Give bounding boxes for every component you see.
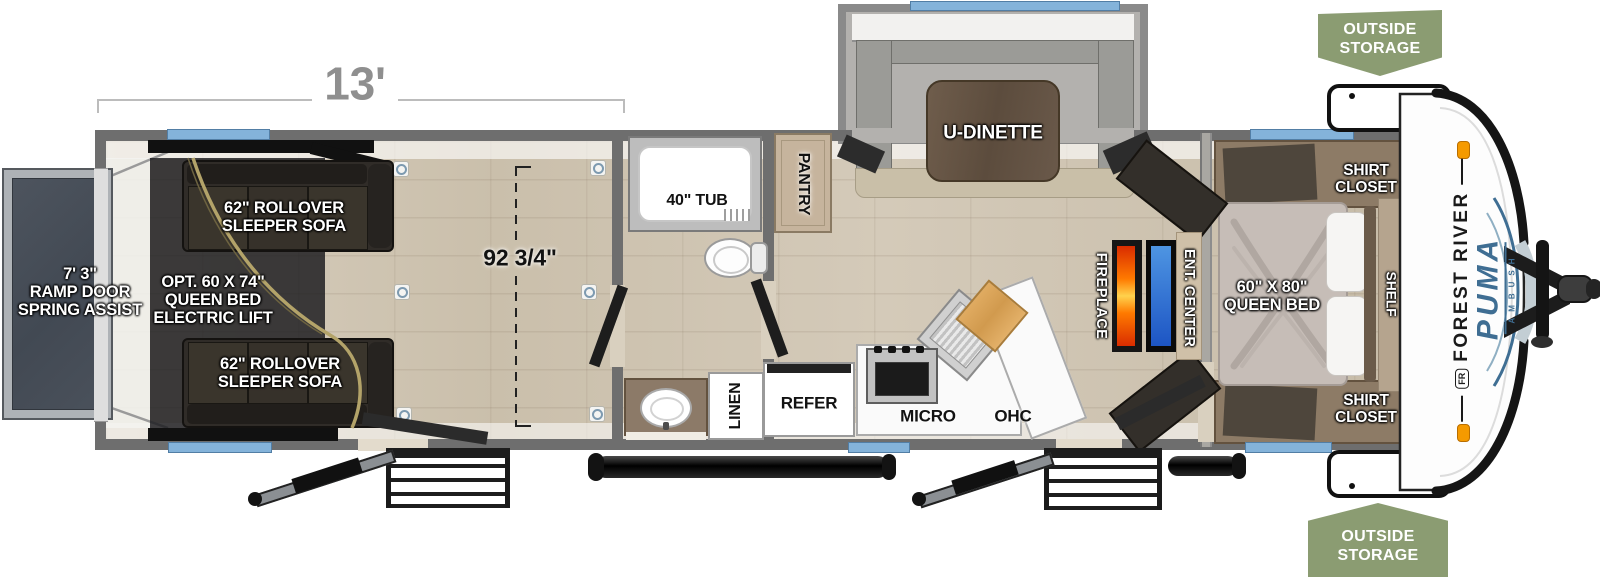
length-dim-tick-left: [97, 99, 99, 113]
fireplace-unit: [1112, 240, 1142, 352]
dinette-label: U-DINETTE: [943, 124, 1043, 145]
toilet-tank: [750, 242, 768, 274]
awning-tube-cap-right: [882, 454, 896, 480]
floorplan-canvas: 13' 7' 3" RAMP DOOR SPRING ASSIST: [0, 0, 1600, 577]
outside-storage-badge-top: OUTSIDE STORAGE: [1318, 10, 1442, 76]
garage-steps-rail-foot: [248, 492, 262, 506]
stove: [866, 348, 938, 404]
marker-light-top: [1457, 141, 1470, 159]
sofa-bottom-label: 62" ROLLOVER SLEEPER SOFA: [218, 355, 342, 391]
shirt-closet-bottom-label: SHIRT CLOSET: [1335, 392, 1397, 426]
dinette-slide-window: [910, 1, 1120, 11]
sofa-top-label: 62" ROLLOVER SLEEPER SOFA: [222, 199, 346, 235]
awning-tube-short-cap: [1232, 453, 1246, 479]
width-dim-line-bottom: [515, 276, 517, 427]
tiedown-ring: [581, 284, 597, 300]
width-dim-label: 92 3/4": [483, 245, 556, 270]
outside-storage-badge-bottom: OUTSIDE STORAGE: [1308, 503, 1448, 577]
dinette-slide-endwall: [852, 14, 1134, 42]
ohc-label: OHC: [994, 408, 1031, 427]
tiedown-ring: [589, 406, 605, 422]
linen-label: LINEN: [727, 382, 745, 429]
ent-center-label: ENT. CENTER: [1180, 249, 1196, 347]
garage-bottom-window: [168, 442, 272, 453]
awning-tube-long: [596, 456, 888, 478]
tv: [1146, 240, 1176, 352]
kitchen-bottom-window: [848, 442, 910, 453]
micro-label: MICRO: [900, 408, 956, 427]
outside-storage-top-label: OUTSIDE STORAGE: [1340, 20, 1421, 58]
marker-light-bottom: [1457, 424, 1470, 442]
fireplace-label: FIREPLACE: [1092, 253, 1108, 340]
entry-steps-rail-pad: [951, 460, 1018, 495]
brand-flourish: [1461, 158, 1463, 184]
refer-label: REFER: [781, 395, 838, 414]
bathtub: [628, 136, 762, 232]
dinette-bench-back: [856, 40, 1134, 64]
bedroom-bottom-window: [1245, 442, 1332, 453]
garage-top-window: [167, 129, 270, 140]
brand-model-text: PUMA: [1474, 236, 1504, 340]
length-dim-line-right: [398, 99, 625, 101]
outside-storage-bottom-label: OUTSIDE STORAGE: [1338, 527, 1419, 565]
width-dim-line-top: [515, 167, 517, 240]
toilet: [704, 236, 770, 280]
garage-steps: [382, 446, 514, 510]
brand-trim-text: AMBUSH: [1508, 236, 1517, 340]
headboard: [1364, 206, 1376, 382]
awning-tube-short: [1168, 456, 1238, 476]
tv-screen: [1151, 246, 1171, 346]
width-dim-tick-top: [515, 166, 531, 168]
brand-puma: PUMA AMBUSH: [1474, 236, 1517, 340]
ramp-label: 7' 3" RAMP DOOR SPRING ASSIST: [18, 265, 142, 319]
length-dim-line-left: [97, 99, 312, 101]
pantry-label: PANTRY: [794, 153, 812, 216]
length-dim-tick-right: [623, 99, 625, 113]
fireplace-flame: [1117, 246, 1135, 346]
tiedown-ring: [590, 160, 606, 176]
brand-maker-text: FOREST RIVER: [1451, 191, 1473, 361]
queen-bed-label: 60" X 80" QUEEN BED: [1224, 278, 1320, 314]
brand-forest-river: FR FOREST RIVER: [1451, 158, 1473, 421]
brand-flourish: [1461, 396, 1463, 422]
width-dim-tick-bottom: [515, 425, 531, 427]
oven-window: [875, 362, 929, 396]
bed-lift-label: OPT. 60 X 74" QUEEN BED ELECTRIC LIFT: [153, 273, 272, 327]
awning-tube-cap-left: [588, 453, 604, 481]
bed-pillows: [1326, 212, 1368, 376]
vanity-base: [626, 432, 706, 440]
shirt-closet-top-label: SHIRT CLOSET: [1335, 162, 1397, 196]
brand-monogram: FR: [1455, 369, 1469, 389]
tub-jets: [724, 209, 750, 221]
entry-steps: [1040, 446, 1166, 512]
entry-steps-rail-foot: [912, 492, 926, 506]
length-dim-label: 13': [324, 59, 386, 110]
bath-vanity: [624, 378, 708, 436]
tub-label: 40" TUB: [666, 192, 727, 210]
faucet: [663, 422, 669, 430]
